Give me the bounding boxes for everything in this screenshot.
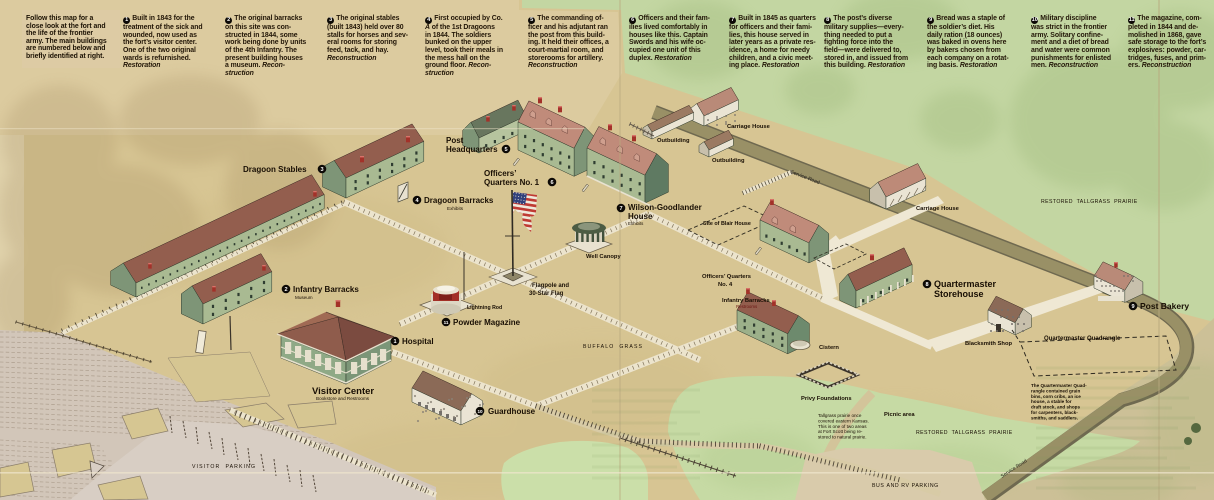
svg-text:9: 9 xyxy=(1131,304,1134,310)
svg-text:Exhibits: Exhibits xyxy=(628,221,644,226)
svg-text:Powder Magazine: Powder Magazine xyxy=(453,318,521,327)
svg-text:11: 11 xyxy=(444,320,449,325)
svg-text:6: 6 xyxy=(550,180,553,186)
svg-text:for carpenters, black-: for carpenters, black- xyxy=(1031,410,1078,415)
svg-text:draft stock, and shops: draft stock, and shops xyxy=(1031,405,1080,410)
svg-text:Quarters No. 1: Quarters No. 1 xyxy=(484,178,540,187)
svg-text:This is one of two areas: This is one of two areas xyxy=(818,424,867,429)
svg-text:7: 7 xyxy=(619,206,622,212)
svg-text:Hospital: Hospital xyxy=(402,337,434,346)
svg-text:Picnic area: Picnic area xyxy=(884,412,915,418)
svg-text:Dragoon Barracks: Dragoon Barracks xyxy=(424,196,494,205)
svg-text:at Fort Scott being re-: at Fort Scott being re- xyxy=(818,429,863,434)
svg-text:Privy Foundations: Privy Foundations xyxy=(801,396,852,402)
svg-text:Officers’ Quarters: Officers’ Quarters xyxy=(702,274,751,280)
svg-text:Cistern: Cistern xyxy=(819,345,839,351)
svg-text:House: House xyxy=(628,212,653,221)
svg-text:rangle contained grain: rangle contained grain xyxy=(1031,388,1080,393)
svg-text:VISITOR PARKING: VISITOR PARKING xyxy=(192,464,256,470)
svg-text:Outbuilding: Outbuilding xyxy=(657,138,690,144)
svg-text:Exhibits: Exhibits xyxy=(447,206,464,211)
svg-text:Flagpole and: Flagpole and xyxy=(532,283,569,289)
svg-text:10: 10 xyxy=(477,409,483,414)
svg-text:Restrooms: Restrooms xyxy=(736,304,758,309)
svg-text:Tallgrass prairie once: Tallgrass prairie once xyxy=(818,413,862,418)
svg-text:1: 1 xyxy=(393,339,396,345)
svg-text:Post Bakery: Post Bakery xyxy=(1140,301,1189,311)
svg-text:8: 8 xyxy=(925,282,928,288)
svg-text:Site of Blair House: Site of Blair House xyxy=(703,221,751,227)
svg-text:Dragoon Stables: Dragoon Stables xyxy=(243,165,307,174)
svg-text:Outbuilding: Outbuilding xyxy=(712,158,745,164)
svg-text:3: 3 xyxy=(320,167,323,173)
svg-text:Blacksmith Shop: Blacksmith Shop xyxy=(965,341,1012,347)
svg-text:Quartermaster: Quartermaster xyxy=(934,279,997,289)
svg-text:Guardhouse: Guardhouse xyxy=(488,407,536,416)
svg-text:Carriage House: Carriage House xyxy=(916,206,960,212)
svg-text:BUFFALO GRASS: BUFFALO GRASS xyxy=(583,344,643,350)
svg-text:Quartermaster Quadrangle: Quartermaster Quadrangle xyxy=(1044,336,1121,342)
svg-text:Well Canopy: Well Canopy xyxy=(586,254,621,260)
svg-text:BUS AND RV PARKING: BUS AND RV PARKING xyxy=(872,483,939,489)
svg-text:RESTORED TALLGRASS PRAIRIE: RESTORED TALLGRASS PRAIRIE xyxy=(1041,199,1138,205)
svg-text:Museum: Museum xyxy=(295,295,313,300)
svg-text:5: 5 xyxy=(504,147,507,153)
svg-text:2: 2 xyxy=(284,287,287,293)
svg-text:The Quartermaster Quad-: The Quartermaster Quad- xyxy=(1031,383,1087,388)
svg-text:Carriage House: Carriage House xyxy=(727,124,771,130)
svg-text:RESTORED TALLGRASS PRAIRIE: RESTORED TALLGRASS PRAIRIE xyxy=(916,430,1013,436)
svg-text:Wilson-Goodlander: Wilson-Goodlander xyxy=(628,203,702,212)
svg-text:Officers’: Officers’ xyxy=(484,169,516,178)
svg-text:No. 4: No. 4 xyxy=(718,282,733,288)
svg-text:Storehouse: Storehouse xyxy=(934,289,984,299)
svg-text:Bookstore and Restrooms: Bookstore and Restrooms xyxy=(316,396,370,401)
svg-text:Headquarters: Headquarters xyxy=(446,145,498,154)
svg-text:covered eastern Kansas.: covered eastern Kansas. xyxy=(818,418,869,423)
svg-text:Post: Post xyxy=(446,136,464,145)
svg-text:30-Star Flag: 30-Star Flag xyxy=(529,291,564,297)
svg-text:bins, corn cribs, an ice: bins, corn cribs, an ice xyxy=(1031,394,1081,399)
svg-text:house, a stable for: house, a stable for xyxy=(1031,399,1072,404)
svg-text:Lightning Rod: Lightning Rod xyxy=(467,305,502,311)
svg-text:smiths, and saddlers.: smiths, and saddlers. xyxy=(1031,415,1078,420)
svg-text:stored to natural prairie.: stored to natural prairie. xyxy=(818,435,867,440)
svg-text:Infantry Barracks: Infantry Barracks xyxy=(293,285,359,294)
